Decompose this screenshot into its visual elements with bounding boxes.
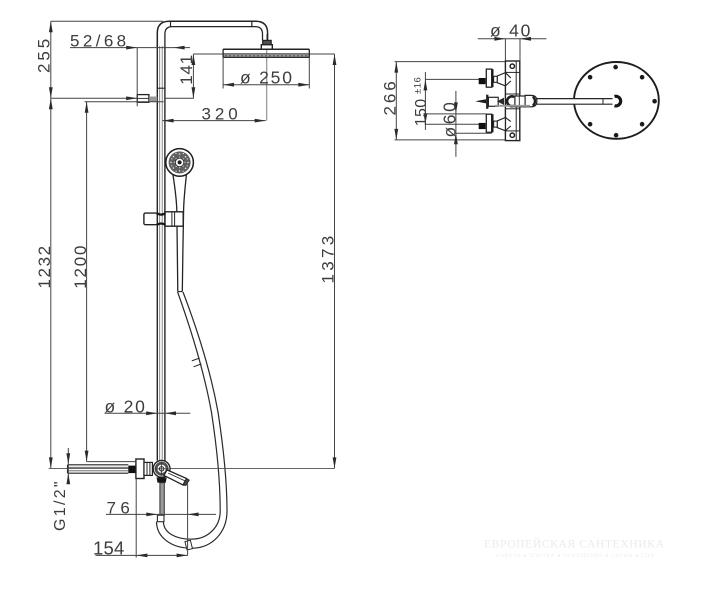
svg-text:320: 320	[202, 105, 242, 124]
svg-text:1200: 1200	[71, 244, 90, 289]
svg-text:52/68: 52/68	[70, 31, 130, 50]
svg-text:154: 154	[93, 538, 124, 559]
svg-text:76: 76	[107, 498, 135, 517]
svg-text:ЕВРОПЕЙСКАЯ САНТЕХНИКА: ЕВРОПЕЙСКАЯ САНТЕХНИКА	[484, 537, 665, 551]
svg-text:255: 255	[35, 36, 54, 73]
svg-text:ø 40: ø 40	[490, 21, 532, 41]
svg-text:141: 141	[177, 54, 196, 85]
svg-text:1232: 1232	[35, 244, 54, 288]
svg-text:±16: ±16	[413, 77, 424, 94]
svg-text:1373: 1373	[319, 232, 338, 283]
svg-text:150: 150	[413, 98, 430, 126]
svg-text:ø 250: ø 250	[240, 67, 294, 87]
svg-text:G1/2": G1/2"	[52, 479, 69, 531]
svg-text:ø 20: ø 20	[105, 397, 147, 417]
svg-text:ø60: ø60	[439, 100, 459, 138]
svg-text:КАФЕЛЬ ● ПЛИТКА ● ОСВЕЩЕНИЕ ●: КАФЕЛЬ ● ПЛИТКА ● ОСВЕЩЕНИЕ ● САУНЫ ● СП…	[496, 553, 655, 559]
svg-text:266: 266	[381, 78, 400, 115]
